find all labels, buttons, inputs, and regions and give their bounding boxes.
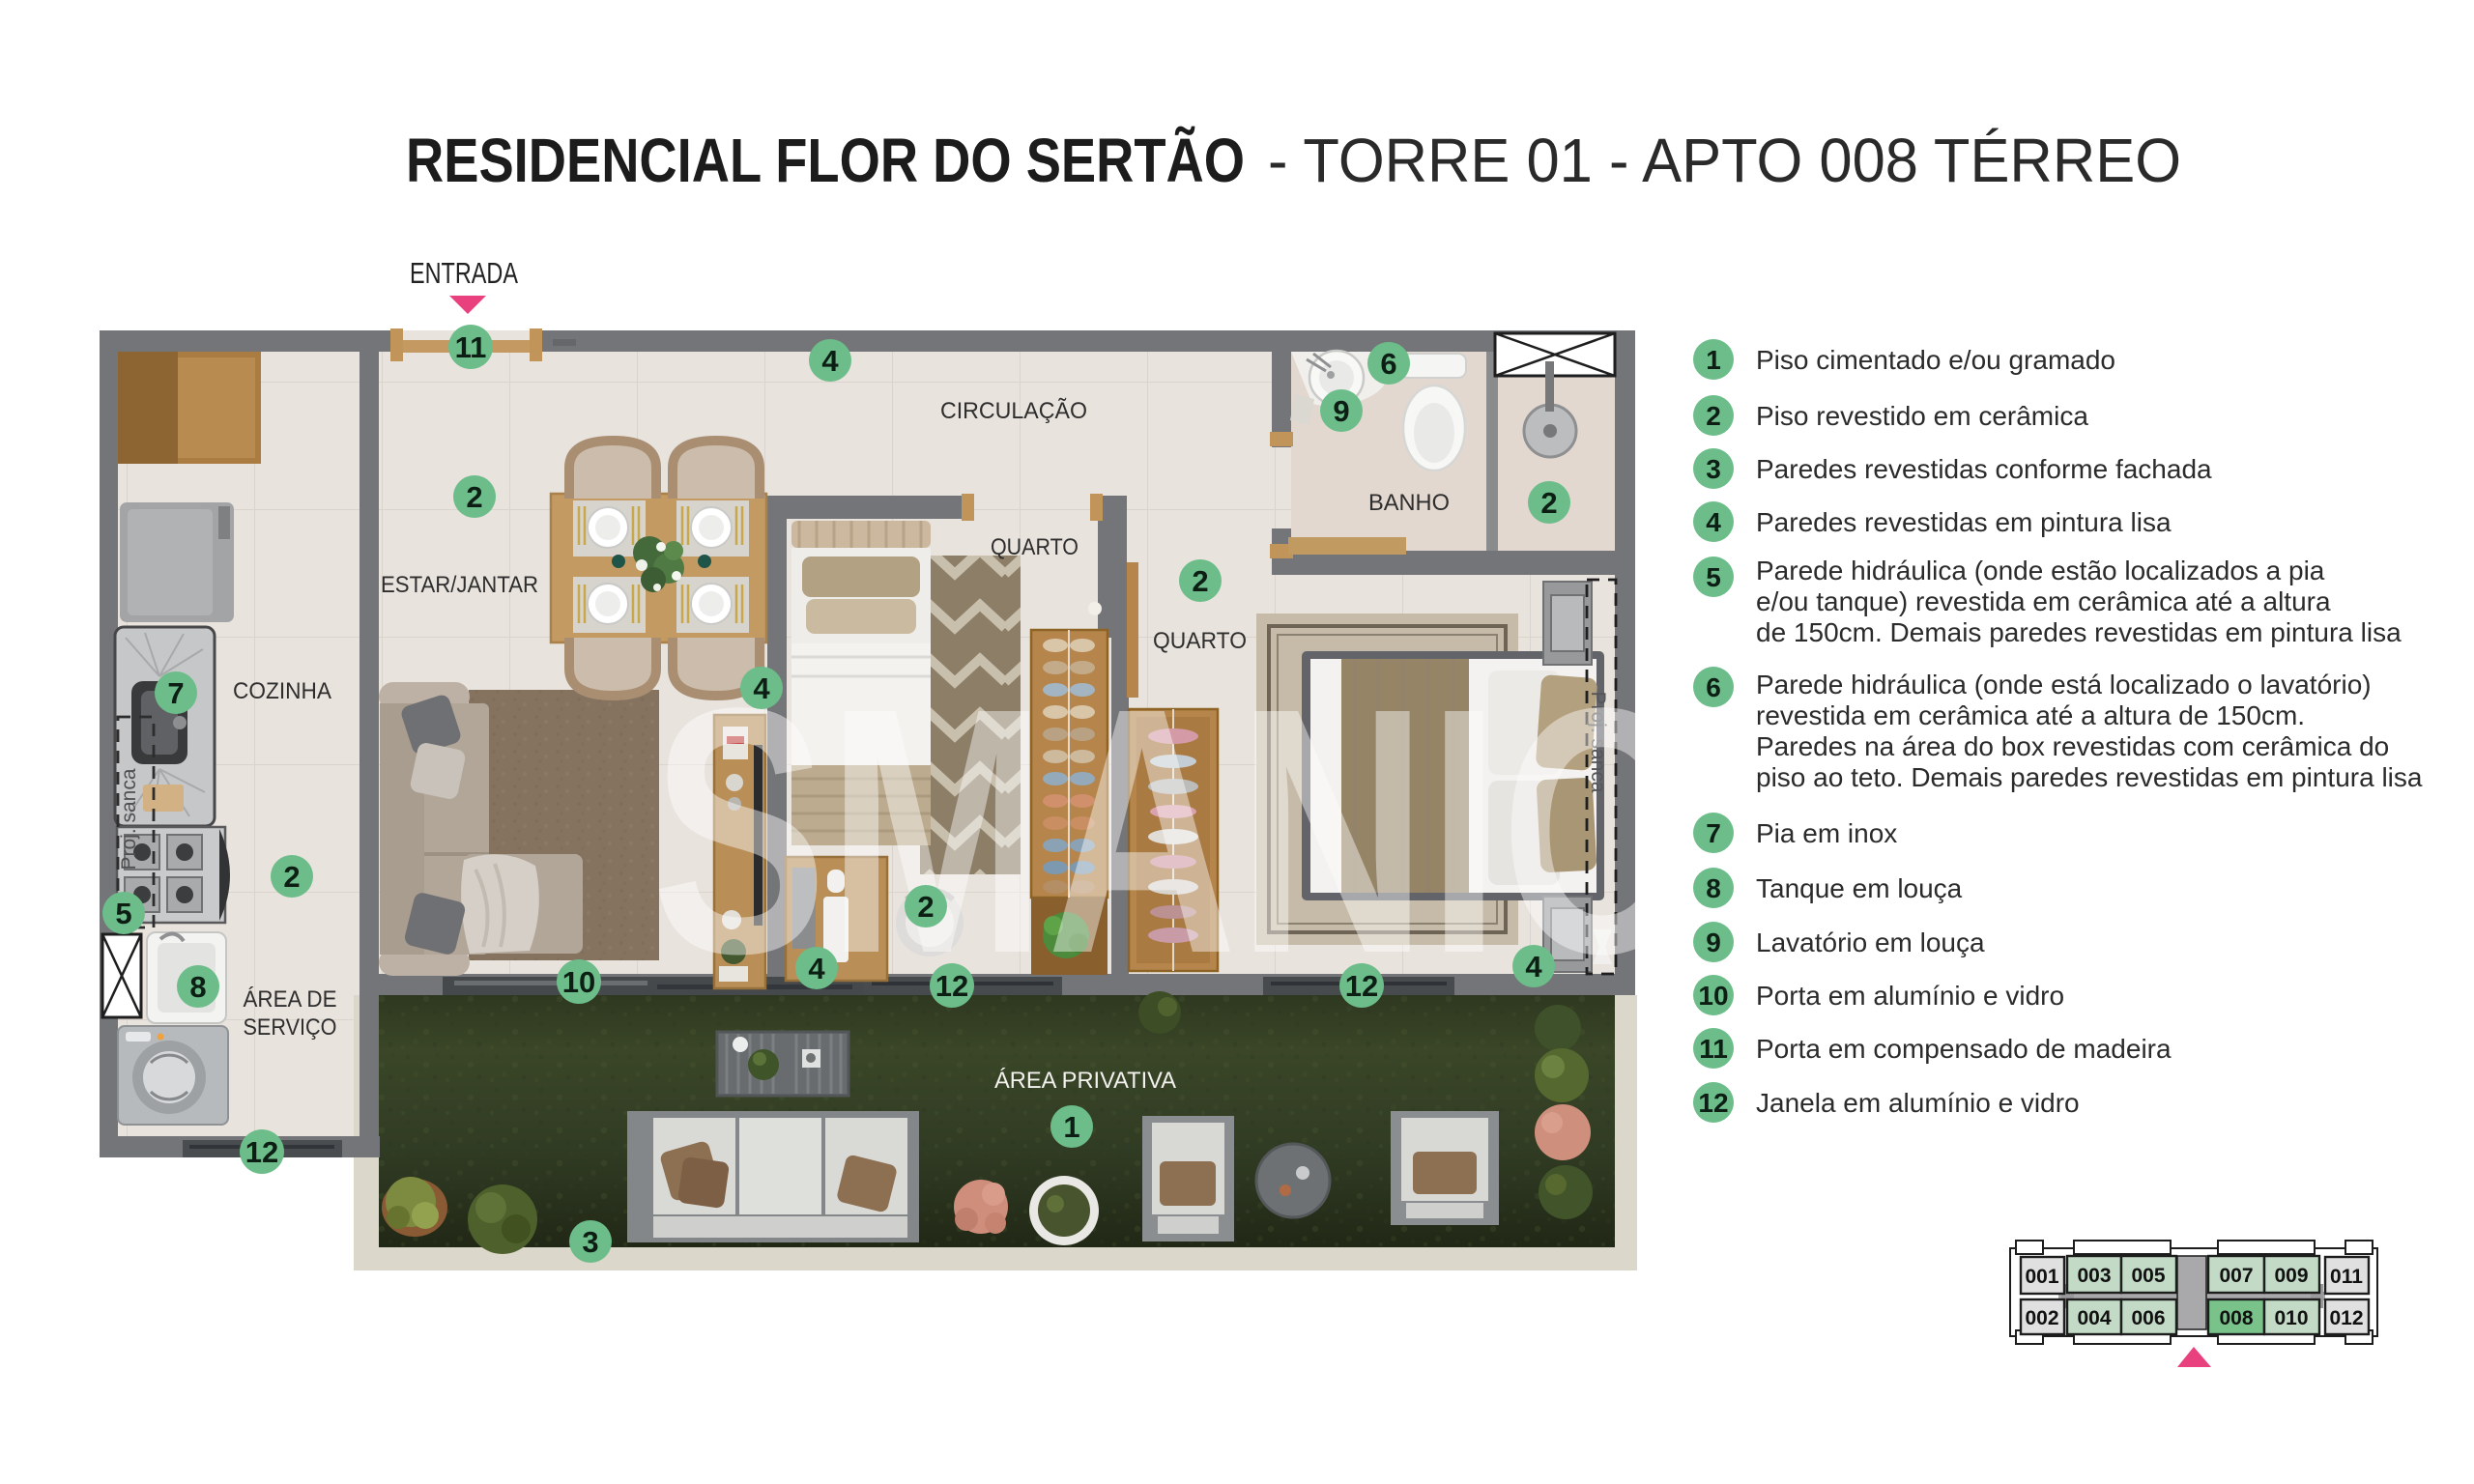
svg-text:12: 12 [245, 1135, 278, 1169]
svg-text:2: 2 [1706, 401, 1721, 431]
svg-text:Lavatório em louça: Lavatório em louça [1756, 927, 1985, 957]
svg-text:Paredes revestidas em pintura: Paredes revestidas em pintura lisa [1756, 507, 2172, 537]
svg-text:2: 2 [917, 890, 934, 924]
svg-text:011: 011 [2330, 1266, 2363, 1288]
svg-text:9: 9 [1706, 927, 1721, 957]
svg-text:Proj. sanca: Proj. sanca [118, 768, 140, 870]
svg-text:2: 2 [1192, 564, 1208, 598]
svg-text:ÁREA PRIVATIVA: ÁREA PRIVATIVA [994, 1068, 1176, 1094]
svg-text:Janela em alumínio e vidro: Janela em alumínio e vidro [1756, 1088, 2080, 1118]
svg-text:Parede hidráulica (onde está l: Parede hidráulica (onde está localizado … [1756, 670, 2372, 699]
svg-text:12: 12 [1345, 969, 1378, 1003]
svg-text:4: 4 [753, 671, 770, 705]
svg-text:4: 4 [821, 344, 839, 378]
svg-text:revestida em cerâmica até a al: revestida em cerâmica até a altura de 15… [1756, 700, 2305, 730]
svg-text:009: 009 [2274, 1265, 2308, 1287]
svg-text:010: 010 [2274, 1307, 2308, 1329]
svg-text:6: 6 [1706, 672, 1721, 702]
svg-text:4: 4 [808, 952, 825, 985]
svg-text:SERVIÇO: SERVIÇO [244, 1014, 337, 1041]
svg-text:e/ou tanque) revestida em cerâ: e/ou tanque) revestida em cerâmica até a… [1756, 586, 2331, 616]
svg-text:008: 008 [2219, 1307, 2253, 1329]
svg-text:COZINHA: COZINHA [233, 678, 331, 704]
svg-text:3: 3 [582, 1225, 598, 1259]
svg-text:CIRCULAÇÃO: CIRCULAÇÃO [940, 398, 1087, 424]
svg-text:ÁREA DE: ÁREA DE [244, 986, 337, 1013]
svg-text:1: 1 [1706, 345, 1721, 375]
svg-text:ESTAR/JANTAR: ESTAR/JANTAR [381, 572, 538, 598]
svg-text:7: 7 [167, 676, 184, 710]
svg-text:002: 002 [2025, 1307, 2058, 1329]
svg-text:005: 005 [2131, 1265, 2165, 1287]
svg-text:ENTRADA: ENTRADA [410, 256, 518, 290]
svg-text:2: 2 [1540, 486, 1557, 520]
svg-text:Paredes na área do box revesti: Paredes na área do box revestidas com ce… [1756, 731, 2389, 761]
svg-text:Porta em compensado de madeira: Porta em compensado de madeira [1756, 1034, 2172, 1064]
svg-text:11: 11 [1699, 1034, 1728, 1064]
svg-text:5: 5 [115, 897, 131, 930]
svg-text:4: 4 [1706, 507, 1721, 537]
svg-text:001: 001 [2025, 1266, 2058, 1288]
svg-text:QUARTO: QUARTO [991, 534, 1079, 560]
svg-text:12: 12 [935, 969, 968, 1003]
svg-text:8: 8 [1706, 873, 1721, 903]
svg-text:Piso cimentado e/ou gramado: Piso cimentado e/ou gramado [1756, 345, 2115, 375]
svg-text:7: 7 [1706, 818, 1721, 848]
svg-text:BANHO: BANHO [1368, 490, 1450, 516]
svg-text:piso ao teto. Demais paredes r: piso ao teto. Demais paredes revestidas … [1756, 762, 2423, 792]
svg-text:Porta em alumínio e vidro: Porta em alumínio e vidro [1756, 981, 2064, 1011]
svg-text:Piso revestido em cerâmica: Piso revestido em cerâmica [1756, 401, 2088, 431]
svg-text:012: 012 [2329, 1307, 2363, 1329]
svg-text:Parede hidráulica (onde estão: Parede hidráulica (onde estão localizado… [1756, 556, 2325, 585]
svg-text:Pia em inox: Pia em inox [1756, 818, 1897, 848]
svg-text:1: 1 [1063, 1110, 1079, 1144]
svg-text:- TORRE 01 - APTO 008 TÉRREO: - TORRE 01 - APTO 008 TÉRREO [1268, 126, 2181, 195]
svg-text:Tanque em louça: Tanque em louça [1756, 873, 1963, 903]
svg-text:6: 6 [1380, 347, 1396, 381]
svg-text:5: 5 [1706, 562, 1721, 592]
svg-text:10: 10 [562, 965, 595, 999]
svg-text:006: 006 [2131, 1307, 2165, 1329]
svg-text:RESIDENCIAL FLOR DO SERTÃO: RESIDENCIAL FLOR DO SERTÃO [406, 126, 1245, 195]
svg-text:3: 3 [1706, 454, 1721, 484]
svg-text:004: 004 [2077, 1307, 2111, 1329]
svg-text:003: 003 [2077, 1265, 2111, 1287]
svg-text:9: 9 [1333, 394, 1349, 428]
svg-text:Paredes revestidas conforme fa: Paredes revestidas conforme fachada [1756, 454, 2212, 484]
svg-text:8: 8 [189, 970, 206, 1004]
svg-text:4: 4 [1525, 950, 1542, 984]
svg-text:2: 2 [466, 480, 482, 514]
svg-text:10: 10 [1698, 981, 1728, 1011]
svg-text:de 150cm. Demais paredes reves: de 150cm. Demais paredes revestidas em p… [1756, 617, 2402, 647]
svg-text:12: 12 [1698, 1088, 1728, 1118]
svg-text:2: 2 [283, 860, 300, 894]
svg-text:11: 11 [455, 330, 487, 364]
svg-text:007: 007 [2219, 1265, 2253, 1287]
